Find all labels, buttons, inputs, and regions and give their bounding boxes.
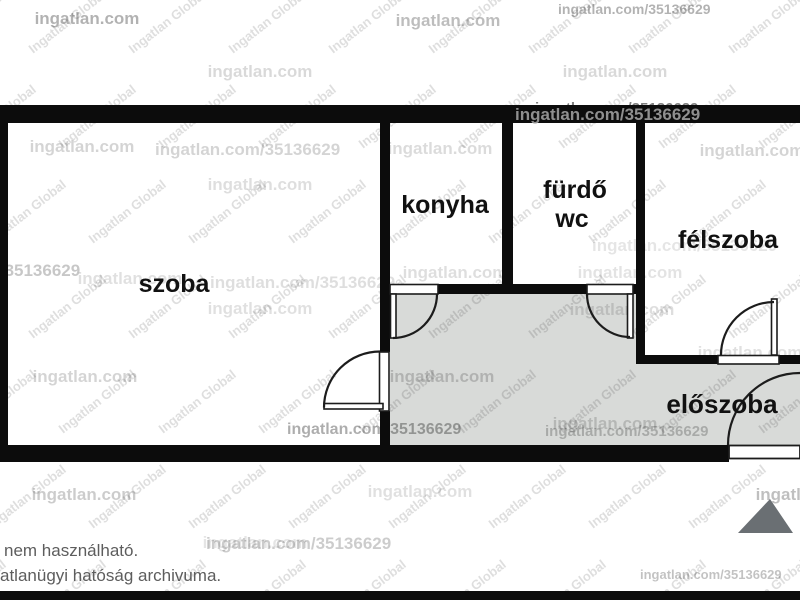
svg-text:ingatlan.com: ingatlan.com xyxy=(578,263,683,282)
svg-text:Ingatlan Global: Ingatlan Global xyxy=(726,272,800,342)
svg-text:ingatlan.com: ingatlan.com xyxy=(563,62,668,81)
svg-text:ingatlan.com/35136629: ingatlan.com/35136629 xyxy=(515,105,700,124)
svg-text:atlanügyi hatóság archivuma.: atlanügyi hatóság archivuma. xyxy=(0,566,221,585)
svg-text:ingatlan.com: ingatlan.com xyxy=(33,367,138,386)
svg-text:ingatlan.com: ingatlan.com xyxy=(388,139,493,158)
svg-text:Ingatlan Global: Ingatlan Global xyxy=(226,0,309,56)
svg-text:ingatlan.com: ingatlan.com xyxy=(30,137,135,156)
svg-text:félszoba: félszoba xyxy=(678,226,779,254)
svg-text:ingatlan.com: ingatlan.com xyxy=(390,367,495,386)
svg-text:Ingatlan Global: Ingatlan Global xyxy=(86,177,169,247)
svg-text:ingatlan.com/35136629: ingatlan.com/35136629 xyxy=(287,421,461,438)
svg-text:ingatlan.com/35136629: ingatlan.com/35136629 xyxy=(558,1,711,17)
svg-text:ingatlan.com: ingatlan.com xyxy=(208,62,313,81)
svg-text:konyha: konyha xyxy=(401,191,490,219)
svg-text:nem használható.: nem használható. xyxy=(4,541,138,560)
svg-text:ingatlan.com/35136629: ingatlan.com/35136629 xyxy=(640,567,782,582)
svg-text:ingatlan.com: ingatlan.com xyxy=(396,11,501,30)
svg-text:ingatlan.com/35136629: ingatlan.com/35136629 xyxy=(545,423,708,440)
svg-text:ingatlan.com: ingatlan.com xyxy=(756,485,800,504)
svg-text:Ingatlan Global: Ingatlan Global xyxy=(0,177,69,247)
svg-text:fürdő: fürdő xyxy=(543,176,607,204)
svg-text:Ingatlan Global: Ingatlan Global xyxy=(186,462,269,532)
svg-text:ingatlan.com: ingatlan.com xyxy=(32,485,137,504)
svg-text:ingatlan.com: ingatlan.com xyxy=(570,300,675,319)
svg-text:ingatlan.com: ingatlan.com xyxy=(368,482,473,501)
svg-text:ingatlan.com: ingatlan.com xyxy=(35,9,140,28)
svg-text:Ingatlan Global: Ingatlan Global xyxy=(486,462,569,532)
svg-text:wc: wc xyxy=(554,205,588,233)
svg-text:Ingatlan Global: Ingatlan Global xyxy=(156,367,239,437)
svg-text:Ingatlan Global: Ingatlan Global xyxy=(286,462,369,532)
svg-text:ingatlan.com: ingatlan.com xyxy=(208,299,313,318)
svg-text:ingatlan.com: ingatlan.com xyxy=(700,141,800,160)
svg-text:előszoba: előszoba xyxy=(666,389,778,419)
svg-text:Ingatlan Global: Ingatlan Global xyxy=(586,462,669,532)
svg-text:ingatlan.com/35136629: ingatlan.com/35136629 xyxy=(210,273,395,292)
svg-text:szoba: szoba xyxy=(139,270,211,298)
svg-text:ingatlan.com: ingatlan.com xyxy=(403,263,508,282)
svg-text:Ingatlan Global: Ingatlan Global xyxy=(726,0,800,56)
svg-text:ingatlan.com: ingatlan.com xyxy=(208,175,313,194)
svg-text:Ingatlan Global: Ingatlan Global xyxy=(0,0,9,56)
svg-text:ingatlan.com/35136629: ingatlan.com/35136629 xyxy=(0,261,80,280)
svg-text:ingatlan.com/35136629: ingatlan.com/35136629 xyxy=(155,140,340,159)
svg-text:ingatlan.com/35136629: ingatlan.com/35136629 xyxy=(206,534,391,553)
